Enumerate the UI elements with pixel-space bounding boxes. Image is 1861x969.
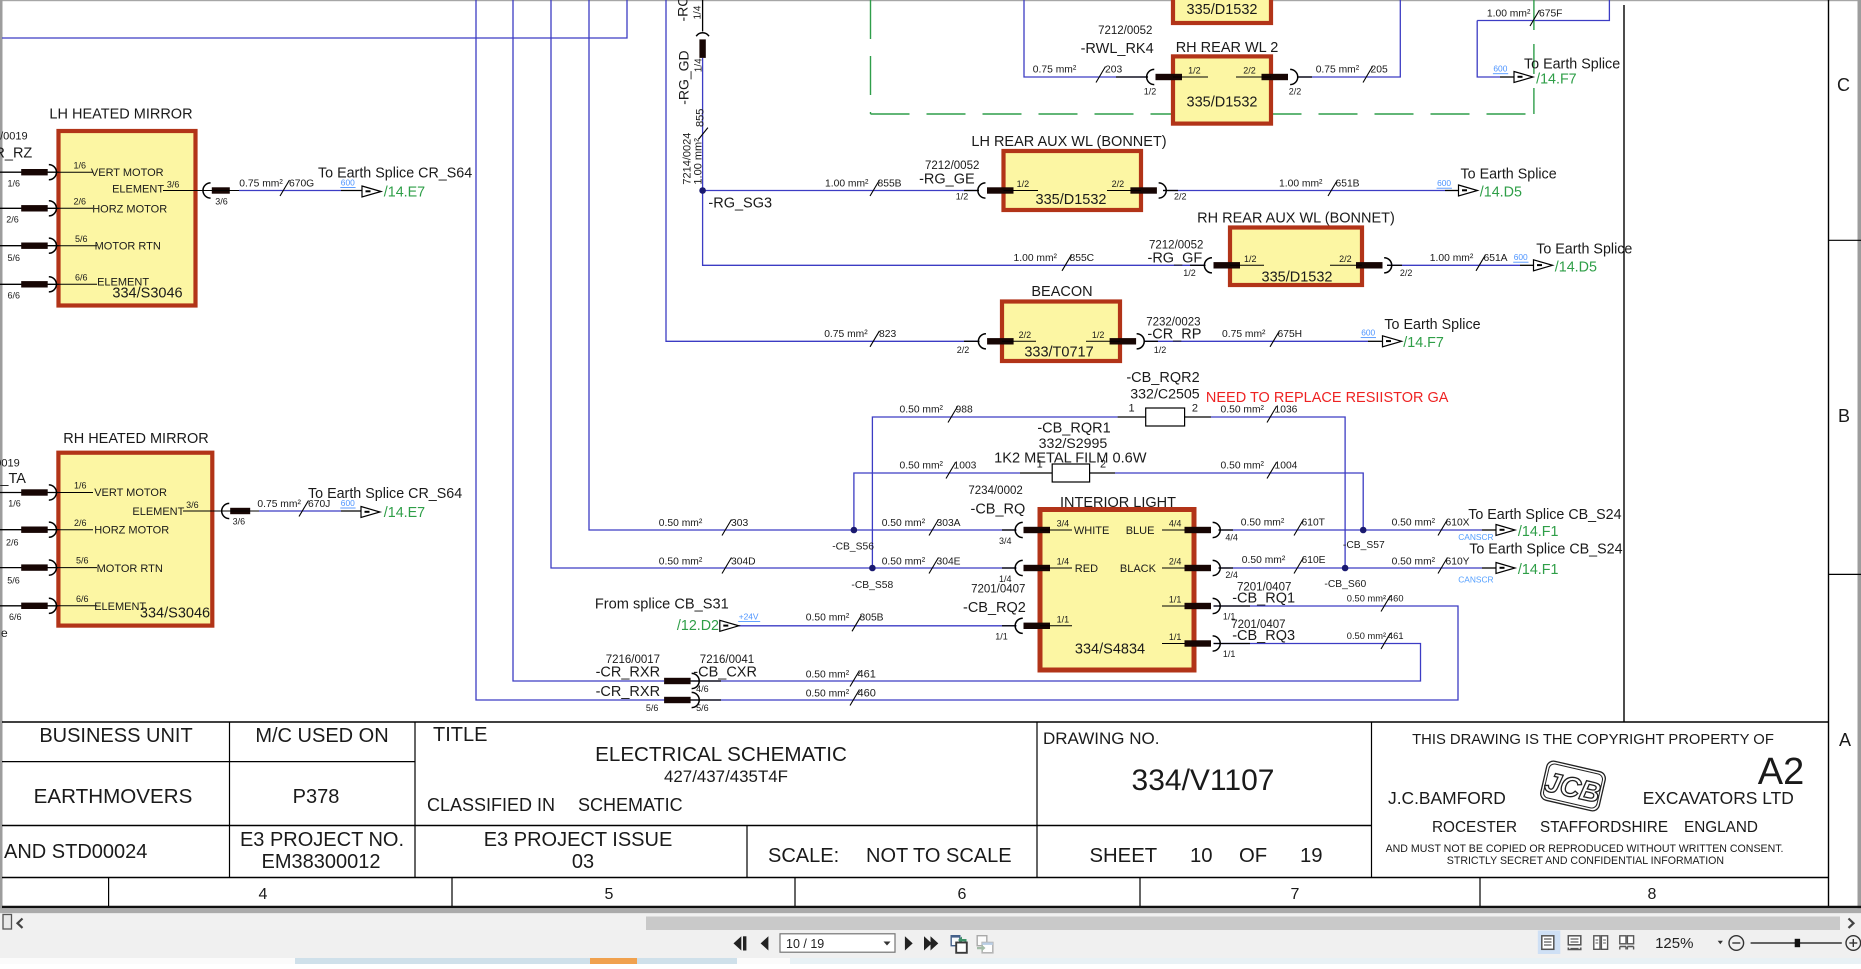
svg-text:-RWL_RK4: -RWL_RK4: [1081, 41, 1154, 57]
svg-text:CLASSIFIED IN: CLASSIFIED IN: [427, 795, 555, 815]
svg-text:To Earth Splice CB_S24: To Earth Splice CB_S24: [1469, 542, 1622, 558]
svg-text:2/2: 2/2: [1400, 268, 1413, 278]
svg-text:6/6: 6/6: [76, 594, 89, 604]
svg-text:1.00 mm²: 1.00 mm²: [693, 138, 705, 185]
svg-text:675H: 675H: [1278, 329, 1303, 340]
svg-text:303A: 303A: [937, 518, 961, 529]
svg-text:335/D1532: 335/D1532: [1262, 269, 1333, 285]
svg-text:To Earth Splice CB_S24: To Earth Splice CB_S24: [1468, 507, 1621, 523]
svg-text:1/4: 1/4: [1057, 556, 1070, 566]
svg-text:7234/0002: 7234/0002: [968, 485, 1022, 497]
svg-text:To Earth Splice: To Earth Splice: [1461, 167, 1557, 183]
svg-text:3/6: 3/6: [186, 500, 199, 510]
svg-text:600: 600: [1361, 327, 1375, 337]
svg-text:1004: 1004: [1275, 461, 1298, 472]
svg-text:1.00 mm²: 1.00 mm²: [1487, 8, 1531, 19]
svg-text:-CB_S57: -CB_S57: [1343, 540, 1385, 551]
svg-text:8: 8: [1648, 886, 1657, 903]
svg-text:-RG_SG3: -RG_SG3: [708, 196, 772, 212]
svg-text:7201/0407: 7201/0407: [971, 584, 1025, 596]
svg-text:461: 461: [1388, 631, 1404, 641]
svg-text:03: 03: [572, 851, 594, 873]
svg-text:600: 600: [1514, 252, 1528, 262]
svg-text:ELECTRICAL SCHEMATIC: ELECTRICAL SCHEMATIC: [595, 743, 847, 766]
svg-text:SCHEMATIC: SCHEMATIC: [578, 795, 683, 815]
svg-text:SHEET: SHEET: [1090, 845, 1158, 867]
svg-text:/14.F7: /14.F7: [1403, 335, 1444, 351]
svg-text:2/2: 2/2: [1289, 86, 1302, 96]
svg-text:1.00 mm²: 1.00 mm²: [1279, 178, 1323, 189]
svg-text:2/2: 2/2: [1339, 254, 1352, 264]
svg-text:333/T0717: 333/T0717: [1024, 344, 1093, 360]
svg-text:335/D1532: 335/D1532: [1036, 192, 1107, 208]
svg-text:SCALE:: SCALE:: [768, 845, 839, 867]
svg-text:2: 2: [1100, 459, 1106, 471]
svg-text:BLUE: BLUE: [1126, 525, 1155, 537]
svg-text:OF: OF: [1239, 845, 1267, 867]
svg-text:334/S4834: 334/S4834: [1075, 642, 1145, 658]
svg-text:3/6: 3/6: [167, 180, 180, 190]
svg-text:1/6: 1/6: [74, 160, 87, 170]
svg-text:0.50 mm²: 0.50 mm²: [900, 405, 944, 416]
svg-text:4/4: 4/4: [1225, 532, 1238, 542]
svg-text:1.00 mm²: 1.00 mm²: [1430, 253, 1474, 264]
svg-text:-CR_RP: -CR_RP: [1147, 327, 1201, 343]
svg-text:855C: 855C: [1070, 253, 1095, 264]
svg-text:0.75 mm²: 0.75 mm²: [239, 178, 283, 189]
svg-text:CANSCR: CANSCR: [1458, 574, 1493, 584]
svg-text:BEACON: BEACON: [1031, 284, 1092, 300]
svg-text:10: 10: [1190, 845, 1213, 867]
svg-text:DRAWING NO.: DRAWING NO.: [1043, 729, 1159, 748]
svg-text:-CB_RQR1: -CB_RQR1: [1037, 420, 1110, 436]
svg-text:/14.E7: /14.E7: [384, 185, 425, 201]
svg-text:1/1: 1/1: [1169, 632, 1182, 642]
svg-text:0.50 mm²: 0.50 mm²: [1221, 461, 1265, 472]
svg-text:1/2: 1/2: [1154, 345, 1167, 355]
svg-text:610T: 610T: [1302, 518, 1326, 529]
svg-text:3/6: 3/6: [215, 196, 228, 206]
svg-text:4/4: 4/4: [1169, 519, 1182, 529]
svg-text:e: e: [1, 626, 8, 640]
svg-text:To Earth Splice: To Earth Splice: [1384, 317, 1480, 333]
svg-text:NOT TO SCALE: NOT TO SCALE: [866, 845, 1012, 867]
svg-text:E3 PROJECT ISSUE: E3 PROJECT ISSUE: [484, 829, 673, 851]
svg-text:3/6: 3/6: [233, 517, 246, 527]
svg-text:0.50 mm²: 0.50 mm²: [900, 461, 944, 472]
svg-text:5/0019: 5/0019: [0, 130, 28, 142]
svg-text:MOTOR RTN: MOTOR RTN: [97, 563, 163, 575]
svg-text:To Earth Splice CR_S64: To Earth Splice CR_S64: [318, 166, 472, 182]
svg-text:B: B: [1838, 406, 1850, 426]
svg-text:VERT MOTOR: VERT MOTOR: [91, 167, 164, 179]
svg-text:19: 19: [1300, 845, 1323, 867]
svg-text:0.50 mm²: 0.50 mm²: [1347, 631, 1386, 641]
svg-text:/14.E7: /14.E7: [384, 505, 425, 521]
svg-text:461: 461: [858, 668, 876, 680]
svg-text:334/S3046: 334/S3046: [112, 286, 182, 302]
svg-text:-CB_RQ1: -CB_RQ1: [1232, 591, 1295, 607]
svg-text:ROCESTER: ROCESTER: [1432, 819, 1517, 836]
svg-text:651A: 651A: [1484, 253, 1508, 264]
svg-text:0.50 mm²: 0.50 mm²: [806, 612, 850, 623]
svg-text:/14.D5: /14.D5: [1555, 260, 1597, 276]
svg-text:C: C: [1837, 75, 1850, 95]
svg-text:600: 600: [1493, 64, 1507, 74]
svg-text:675F: 675F: [1539, 8, 1562, 19]
svg-text:460: 460: [858, 688, 876, 700]
svg-text:2/2: 2/2: [1112, 179, 1125, 189]
svg-text:TITLE: TITLE: [433, 724, 487, 746]
svg-text:2/2: 2/2: [957, 345, 970, 355]
svg-text:BLACK: BLACK: [1120, 563, 1157, 575]
svg-text:1/4: 1/4: [693, 5, 704, 19]
svg-text:304E: 304E: [937, 557, 961, 568]
svg-text:303: 303: [731, 518, 748, 529]
svg-text:HORZ MOTOR: HORZ MOTOR: [92, 203, 167, 215]
svg-text:-CB_RQ: -CB_RQ: [971, 501, 1026, 517]
svg-text:651B: 651B: [1336, 178, 1360, 189]
svg-text:0.75 mm²: 0.75 mm²: [824, 329, 868, 340]
svg-text:CANSCR: CANSCR: [1458, 532, 1493, 542]
svg-text:0.50 mm²: 0.50 mm²: [1347, 593, 1386, 603]
svg-text:+24V: +24V: [739, 611, 759, 621]
svg-text:0.50 mm²: 0.50 mm²: [806, 689, 850, 700]
svg-text:305B: 305B: [860, 612, 884, 623]
svg-text:988: 988: [956, 405, 973, 416]
svg-text:/14.F7: /14.F7: [1536, 71, 1577, 87]
svg-text:BUSINESS UNIT: BUSINESS UNIT: [39, 725, 192, 747]
svg-text:855B: 855B: [878, 178, 902, 189]
svg-text:1/2: 1/2: [1017, 179, 1030, 189]
svg-text:55/0019: 55/0019: [0, 457, 20, 469]
svg-text:10 / 19: 10 / 19: [786, 937, 824, 951]
svg-text:2/6: 2/6: [6, 215, 19, 225]
svg-text:6/6: 6/6: [8, 291, 21, 301]
svg-text:-CB_RQ3: -CB_RQ3: [1232, 628, 1295, 644]
svg-text:To Earth Splice CR_S64: To Earth Splice CR_S64: [308, 486, 462, 502]
svg-text:ENGLAND: ENGLAND: [1684, 819, 1758, 836]
svg-text:335/D1532: 335/D1532: [1187, 95, 1258, 111]
svg-text:LH HEATED MIRROR: LH HEATED MIRROR: [49, 107, 192, 123]
svg-text:1/6: 1/6: [74, 480, 87, 490]
svg-text:EXCAVATORS LTD: EXCAVATORS LTD: [1643, 788, 1794, 808]
svg-text:334/S3046: 334/S3046: [140, 605, 210, 621]
svg-text:0.50 mm²: 0.50 mm²: [1392, 518, 1436, 529]
svg-text:NEED TO REPLACE RESIISTOR GA: NEED TO REPLACE RESIISTOR GA: [1206, 390, 1449, 406]
svg-text:7212/0052: 7212/0052: [925, 160, 979, 172]
svg-text:610Y: 610Y: [1446, 557, 1470, 568]
svg-text:1/1: 1/1: [1223, 649, 1236, 659]
svg-text:5/6: 5/6: [76, 556, 89, 566]
svg-text:125%: 125%: [1655, 935, 1693, 952]
svg-text:-CB_S60: -CB_S60: [1324, 579, 1366, 590]
svg-text:-RG_GF: -RG_GF: [1148, 250, 1203, 266]
svg-text:1: 1: [1129, 403, 1135, 415]
svg-text:3/4: 3/4: [999, 536, 1012, 546]
svg-text:0.75 mm²: 0.75 mm²: [1222, 329, 1266, 340]
svg-text:0.75 mm²: 0.75 mm²: [257, 499, 301, 510]
svg-text:From splice CB_S31: From splice CB_S31: [595, 597, 729, 613]
svg-text:A2: A2: [1758, 751, 1804, 793]
svg-text:0.50 mm²: 0.50 mm²: [1221, 405, 1265, 416]
svg-text:2/4: 2/4: [1225, 570, 1238, 580]
svg-text:RH REAR AUX WL (BONNET): RH REAR AUX WL (BONNET): [1197, 211, 1395, 227]
svg-text:To Earth Splice: To Earth Splice: [1524, 56, 1620, 72]
svg-text:0.75 mm²: 0.75 mm²: [1033, 64, 1077, 75]
svg-text:-RC: -RC: [675, 0, 691, 22]
svg-text:LH REAR AUX WL (BONNET): LH REAR AUX WL (BONNET): [971, 134, 1166, 150]
svg-text:1/2: 1/2: [1092, 330, 1105, 340]
svg-text:1/2: 1/2: [1188, 66, 1201, 76]
svg-text:0.50 mm²: 0.50 mm²: [1241, 518, 1285, 529]
svg-text:610E: 610E: [1302, 555, 1326, 566]
svg-text:-CB_S58: -CB_S58: [851, 580, 893, 591]
svg-text:MOTOR RTN: MOTOR RTN: [95, 241, 161, 253]
svg-text:6/6: 6/6: [75, 272, 88, 282]
svg-text:203: 203: [1105, 64, 1122, 75]
svg-text:1.00 mm²: 1.00 mm²: [825, 178, 869, 189]
svg-text:205: 205: [1371, 64, 1388, 75]
svg-text:332/C2505: 332/C2505: [1130, 387, 1200, 403]
svg-text:5/6: 5/6: [646, 703, 659, 713]
svg-text:1003: 1003: [954, 461, 977, 472]
svg-text:-CB_RQ2: -CB_RQ2: [963, 600, 1026, 616]
svg-text:/12.D2: /12.D2: [677, 618, 719, 634]
svg-text:-CB_CXR: -CB_CXR: [693, 665, 757, 681]
svg-text:2/2: 2/2: [1174, 192, 1187, 202]
svg-text:5/6: 5/6: [696, 703, 709, 713]
svg-text:STAFFORDSHIRE: STAFFORDSHIRE: [1540, 819, 1668, 836]
svg-text:2: 2: [1192, 403, 1198, 415]
svg-text:RH REAR WL 2: RH REAR WL 2: [1176, 40, 1279, 56]
svg-text:HORZ MOTOR: HORZ MOTOR: [94, 524, 169, 536]
svg-text:1: 1: [1037, 459, 1043, 471]
svg-text:427/437/435T4F: 427/437/435T4F: [664, 767, 788, 786]
svg-text:ELEMENT: ELEMENT: [94, 601, 146, 613]
svg-text:EM38300012: EM38300012: [262, 851, 381, 873]
svg-text:1/4: 1/4: [999, 574, 1012, 584]
svg-text:304D: 304D: [731, 557, 756, 568]
svg-text:0.50 mm²: 0.50 mm²: [1242, 555, 1286, 566]
svg-text:-RG_GD: -RG_GD: [676, 50, 692, 104]
svg-text:ELEMENT: ELEMENT: [112, 183, 164, 195]
svg-text:4/6: 4/6: [696, 684, 709, 694]
svg-text:7: 7: [1291, 886, 1300, 903]
svg-text:1.00 mm²: 1.00 mm²: [1014, 253, 1058, 264]
svg-text:0.50 mm²: 0.50 mm²: [659, 518, 703, 529]
svg-text:VERT MOTOR: VERT MOTOR: [94, 487, 167, 499]
svg-text:0.50 mm²: 0.50 mm²: [806, 669, 850, 680]
svg-text:RH HEATED MIRROR: RH HEATED MIRROR: [63, 431, 209, 447]
svg-text:J.C.BAMFORD: J.C.BAMFORD: [1388, 788, 1506, 808]
svg-text:0.75 mm²: 0.75 mm²: [1316, 64, 1360, 75]
svg-text:1/2: 1/2: [1144, 86, 1157, 96]
svg-text:4: 4: [259, 886, 268, 903]
svg-text:600: 600: [1437, 178, 1451, 188]
svg-text:5: 5: [605, 886, 614, 903]
svg-text:335/D1532: 335/D1532: [1187, 2, 1258, 18]
svg-text:7212/0052: 7212/0052: [1098, 25, 1152, 37]
svg-text:-RG_GE: -RG_GE: [919, 172, 975, 188]
svg-text:1/1: 1/1: [1169, 595, 1182, 605]
svg-text:670G: 670G: [289, 178, 314, 189]
svg-text:0.50 mm²: 0.50 mm²: [1392, 557, 1436, 568]
svg-text:-CR_RXR: -CR_RXR: [596, 665, 660, 681]
svg-text:1/4: 1/4: [694, 58, 705, 72]
svg-text:0.50 mm²: 0.50 mm²: [659, 557, 703, 568]
svg-text:To Earth Splice: To Earth Splice: [1536, 242, 1632, 258]
svg-text:RED: RED: [1075, 563, 1098, 575]
svg-text:AND STD00024: AND STD00024: [4, 841, 147, 863]
svg-text:855: 855: [695, 109, 707, 127]
svg-text:M/C USED ON: M/C USED ON: [255, 725, 388, 747]
svg-text:2/6: 2/6: [6, 537, 19, 547]
svg-text:334/V1107: 334/V1107: [1132, 764, 1275, 797]
svg-text:6: 6: [958, 886, 967, 903]
svg-text:WHITE: WHITE: [1074, 525, 1109, 537]
svg-text:6/6: 6/6: [9, 612, 22, 622]
svg-text:3/4: 3/4: [1057, 519, 1070, 529]
svg-text:-CR_RXR: -CR_RXR: [596, 684, 660, 700]
svg-text:-MIR_TA: -MIR_TA: [0, 471, 26, 487]
svg-text:EARTHMOVERS: EARTHMOVERS: [34, 785, 193, 808]
svg-text:2/2: 2/2: [1243, 66, 1256, 76]
svg-text:/14.F1: /14.F1: [1518, 562, 1559, 578]
svg-text:610X: 610X: [1446, 518, 1470, 529]
svg-text:1/6: 1/6: [8, 499, 21, 509]
svg-text:2/6: 2/6: [74, 196, 87, 206]
svg-text:0.50 mm²: 0.50 mm²: [882, 557, 926, 568]
svg-text:1036: 1036: [1275, 405, 1298, 416]
svg-text:THIS DRAWING IS THE COPYRIGHT: THIS DRAWING IS THE COPYRIGHT PROPERTY O…: [1412, 732, 1774, 748]
svg-text:1/1: 1/1: [995, 632, 1008, 642]
svg-text:5/6: 5/6: [75, 234, 88, 244]
svg-text:1/6: 1/6: [8, 179, 21, 189]
svg-text:2/6: 2/6: [74, 518, 87, 528]
svg-text:/14.F1: /14.F1: [1518, 524, 1559, 540]
svg-text:-MIRR_RZ: -MIRR_RZ: [0, 146, 32, 162]
svg-text:AND MUST NOT BE COPIED OR REPR: AND MUST NOT BE COPIED OR REPRODUCED WIT…: [1386, 843, 1784, 855]
svg-text:2/2: 2/2: [1019, 330, 1032, 340]
svg-text:5/6: 5/6: [8, 253, 21, 263]
svg-text:823: 823: [879, 329, 896, 340]
svg-text:STRICTLY SECRET AND CONFIDENTI: STRICTLY SECRET AND CONFIDENTIAL INFORMA…: [1447, 855, 1724, 867]
svg-text:E3 PROJECT NO.: E3 PROJECT NO.: [240, 829, 404, 851]
svg-text:1/2: 1/2: [956, 192, 969, 202]
svg-text:460: 460: [1388, 593, 1404, 603]
svg-text:A: A: [1839, 730, 1851, 750]
svg-text:2/4: 2/4: [1169, 556, 1182, 566]
svg-text:/14.D5: /14.D5: [1480, 185, 1522, 201]
svg-text:ELEMENT: ELEMENT: [132, 506, 184, 518]
svg-text:5/6: 5/6: [7, 576, 20, 586]
svg-text:P378: P378: [293, 786, 340, 808]
svg-text:-CB_RQR2: -CB_RQR2: [1126, 370, 1199, 386]
svg-text:1/1: 1/1: [1057, 614, 1070, 624]
svg-text:-CB_S56: -CB_S56: [832, 542, 874, 553]
svg-text:1/2: 1/2: [1183, 268, 1196, 278]
svg-text:0.50 mm²: 0.50 mm²: [882, 518, 926, 529]
svg-text:1/2: 1/2: [1244, 254, 1257, 264]
